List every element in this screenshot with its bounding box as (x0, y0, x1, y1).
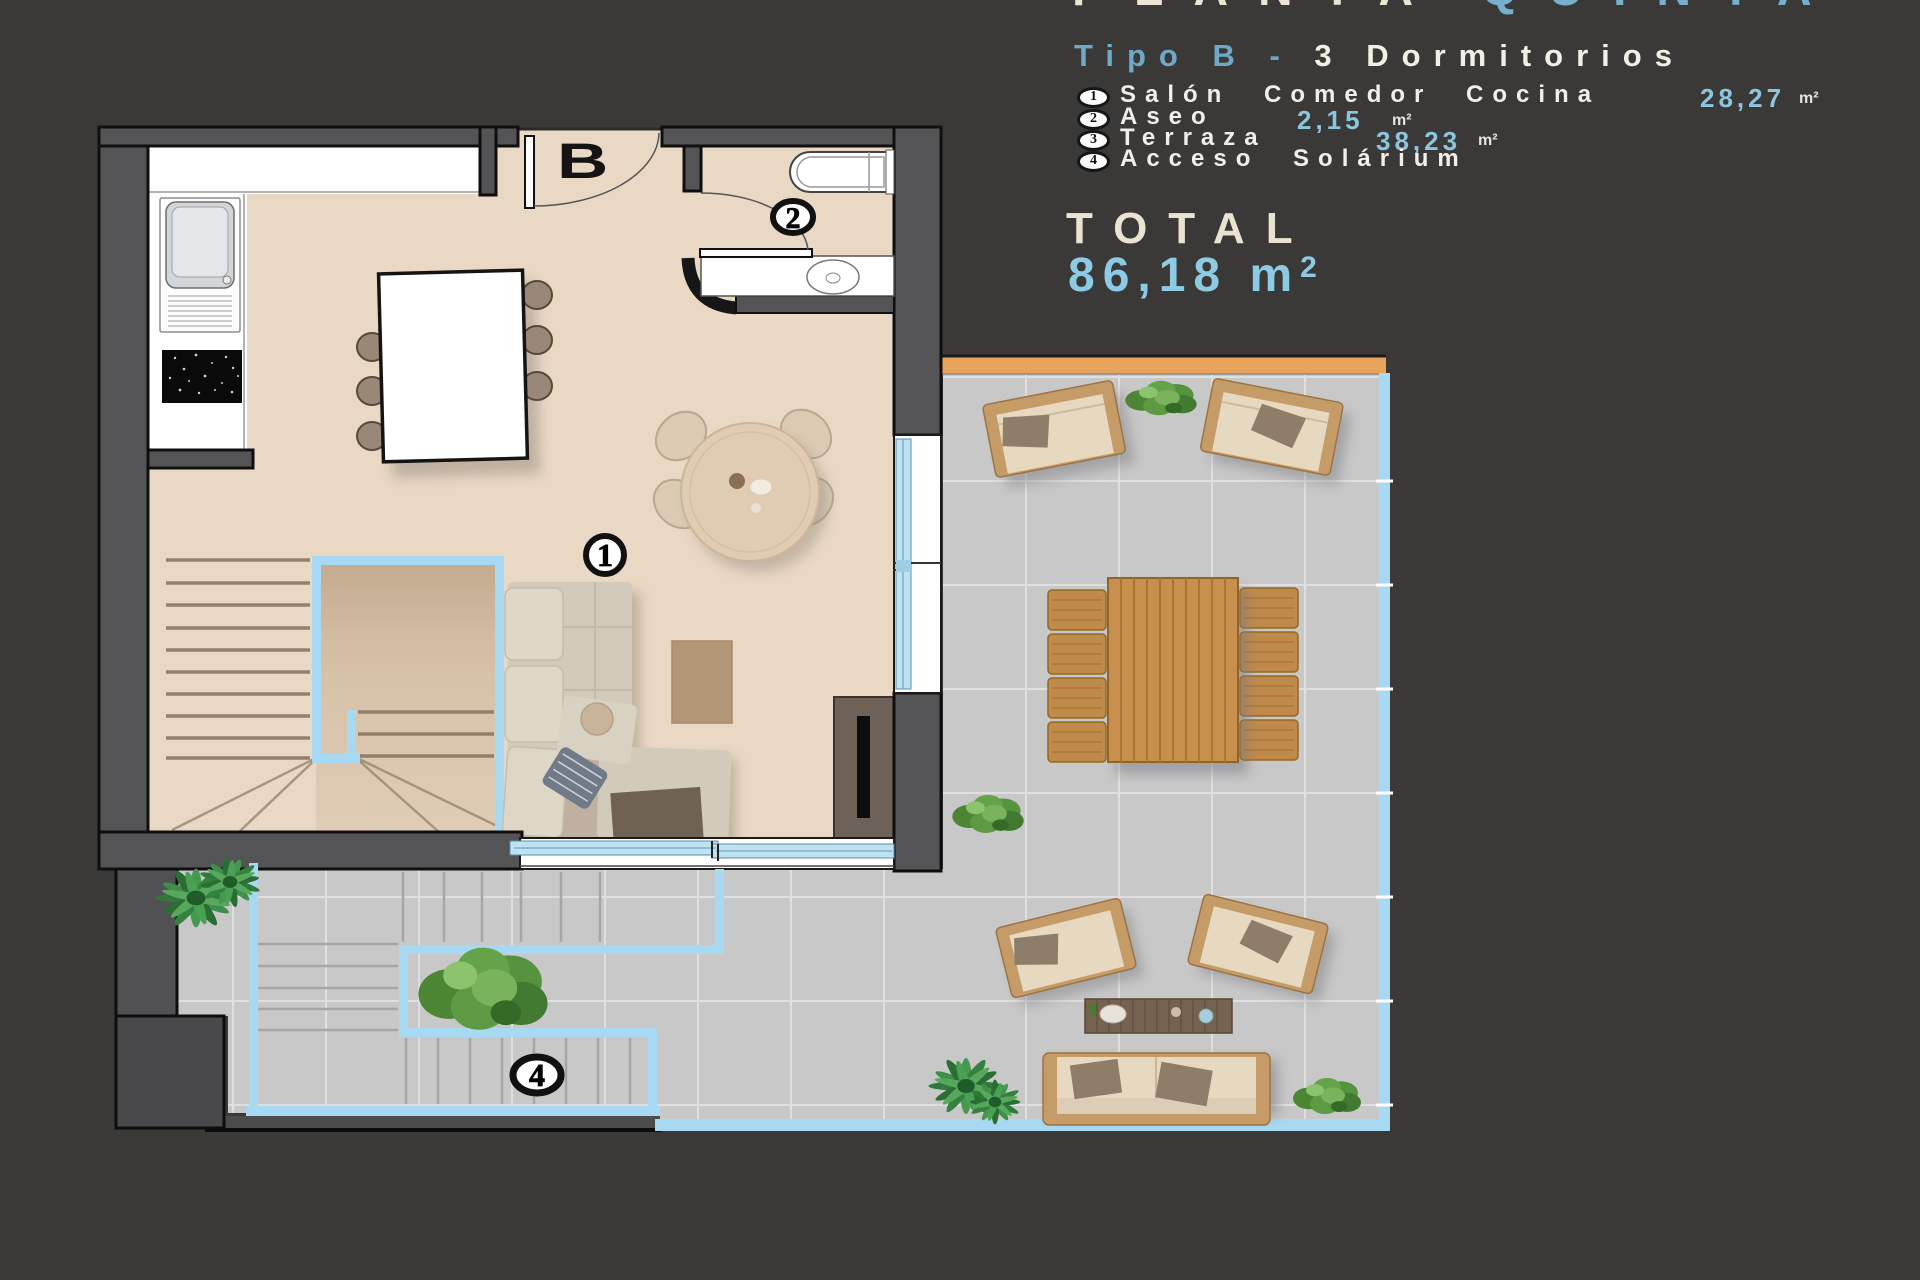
svg-text:4: 4 (529, 1057, 545, 1093)
svg-text:1: 1 (597, 537, 613, 573)
svg-text:B: B (557, 133, 608, 189)
svg-text:2: 2 (786, 202, 801, 235)
